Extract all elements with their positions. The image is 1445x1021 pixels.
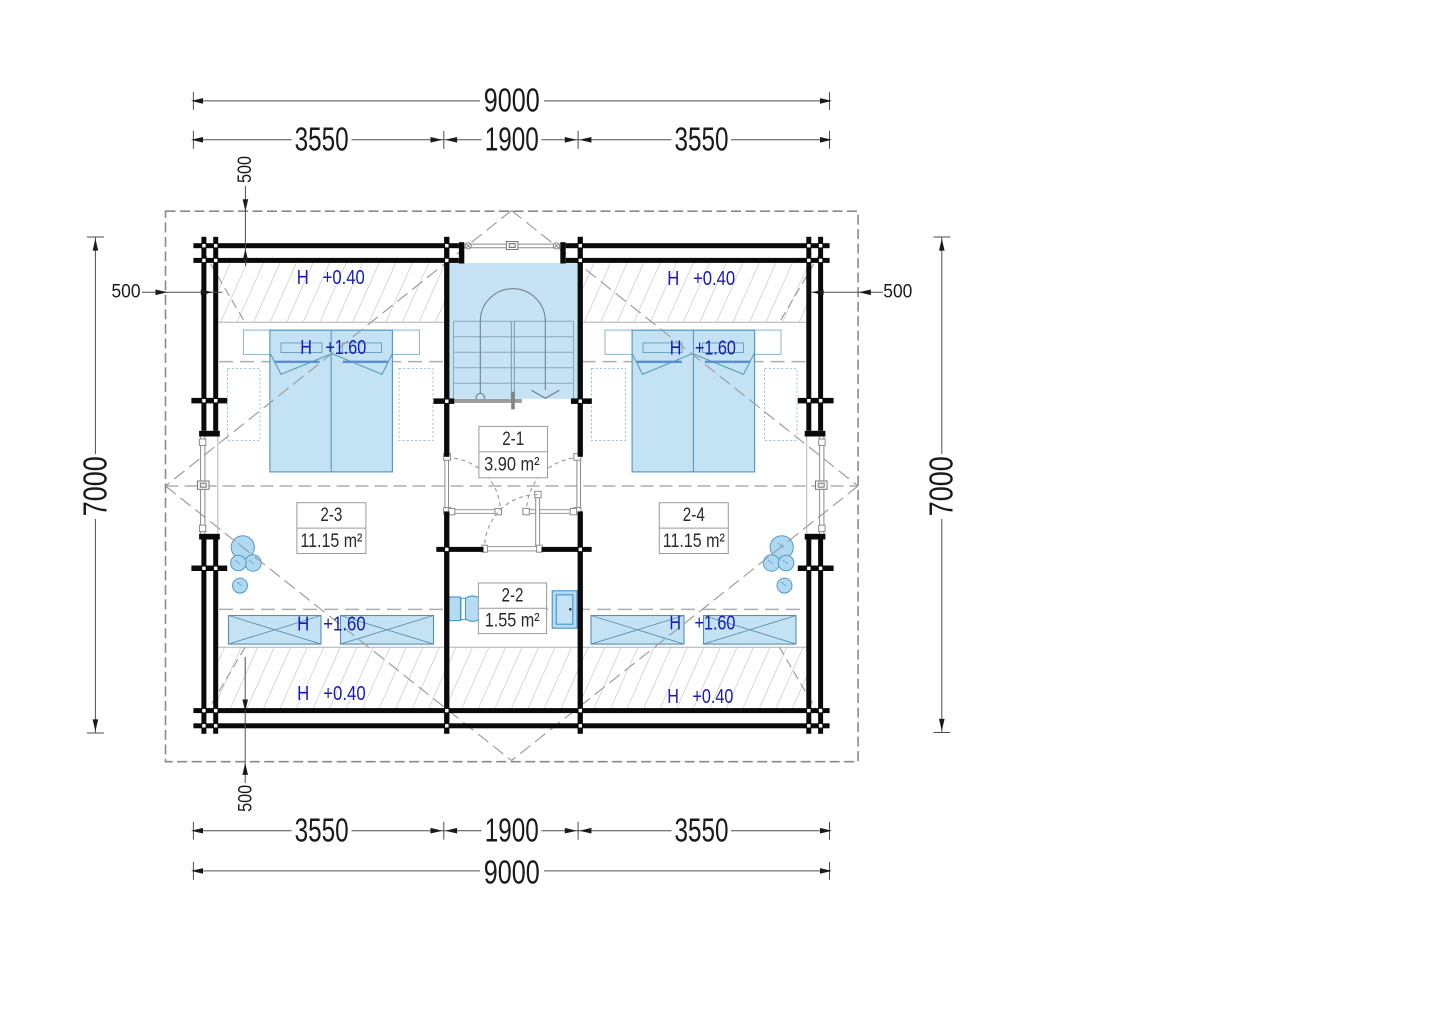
svg-text:3550: 3550 (675, 812, 729, 849)
svg-text:11.15 m²: 11.15 m² (300, 531, 362, 552)
svg-text:1900: 1900 (485, 812, 539, 849)
svg-text:500: 500 (112, 282, 141, 303)
svg-text:2-1: 2-1 (502, 429, 524, 450)
svg-text:500: 500 (883, 282, 912, 303)
svg-text:1.55 m²: 1.55 m² (485, 611, 540, 632)
svg-text:H +0.40: H +0.40 (297, 683, 366, 705)
svg-text:11.15 m²: 11.15 m² (663, 531, 725, 552)
svg-text:9000: 9000 (484, 82, 540, 119)
svg-text:H +1.60: H +1.60 (670, 338, 736, 360)
svg-text:2-2: 2-2 (502, 585, 524, 606)
svg-text:3550: 3550 (675, 121, 729, 158)
svg-text:3.90 m²: 3.90 m² (484, 454, 540, 475)
svg-text:H +0.40: H +0.40 (667, 686, 733, 708)
svg-text:3550: 3550 (295, 812, 349, 849)
svg-text:7000: 7000 (923, 456, 960, 516)
svg-text:3550: 3550 (295, 121, 349, 158)
svg-text:7000: 7000 (76, 456, 113, 516)
svg-text:2-4: 2-4 (683, 505, 705, 526)
svg-text:H +1.60: H +1.60 (297, 613, 366, 635)
svg-text:2-3: 2-3 (320, 505, 342, 526)
svg-text:9000: 9000 (484, 853, 540, 890)
svg-text:1900: 1900 (485, 121, 539, 158)
svg-text:H +1.60: H +1.60 (669, 613, 735, 635)
svg-text:500: 500 (235, 785, 256, 812)
svg-text:500: 500 (235, 156, 256, 183)
svg-text:H +0.40: H +0.40 (667, 268, 735, 290)
svg-text:H +1.60: H +1.60 (300, 337, 366, 359)
svg-text:H +0.40: H +0.40 (297, 267, 365, 289)
